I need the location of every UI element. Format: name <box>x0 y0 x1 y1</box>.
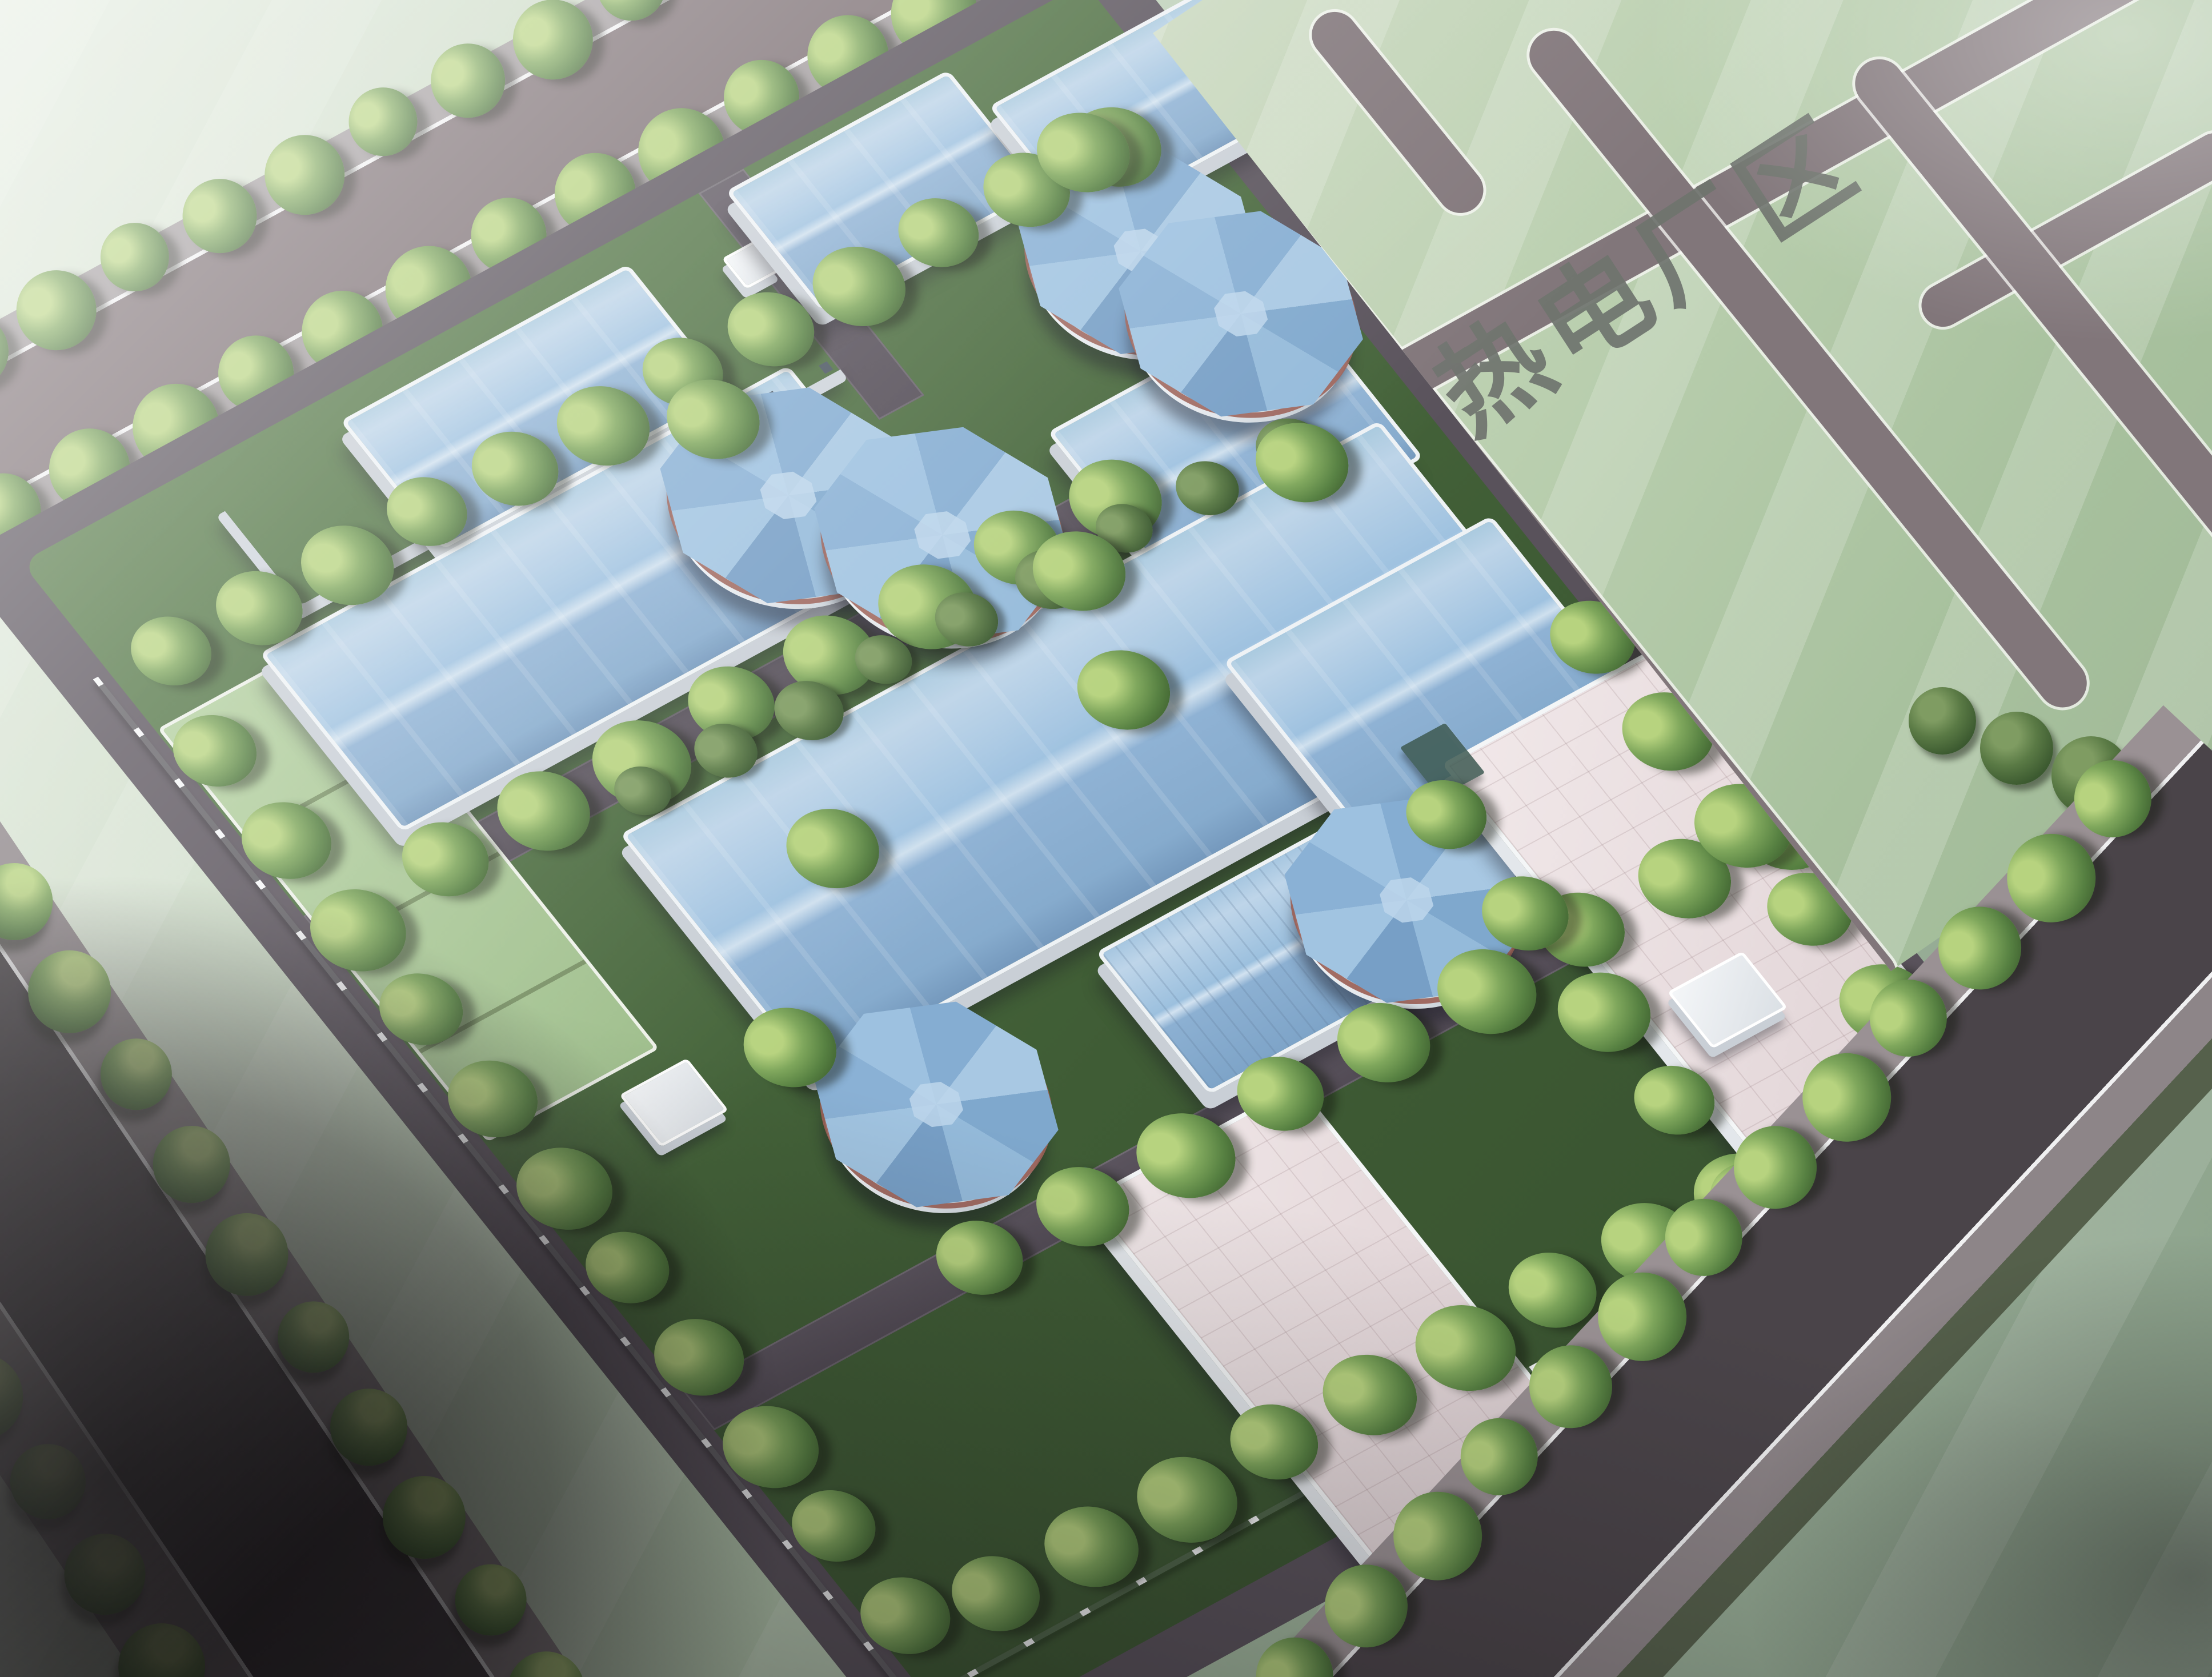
aerial-rendering: 热电厂区 <box>0 0 2212 1677</box>
tree <box>102 1607 222 1677</box>
tree <box>0 1337 40 1457</box>
tree <box>1909 687 1976 755</box>
tree <box>1980 712 2053 785</box>
tree <box>585 0 678 33</box>
